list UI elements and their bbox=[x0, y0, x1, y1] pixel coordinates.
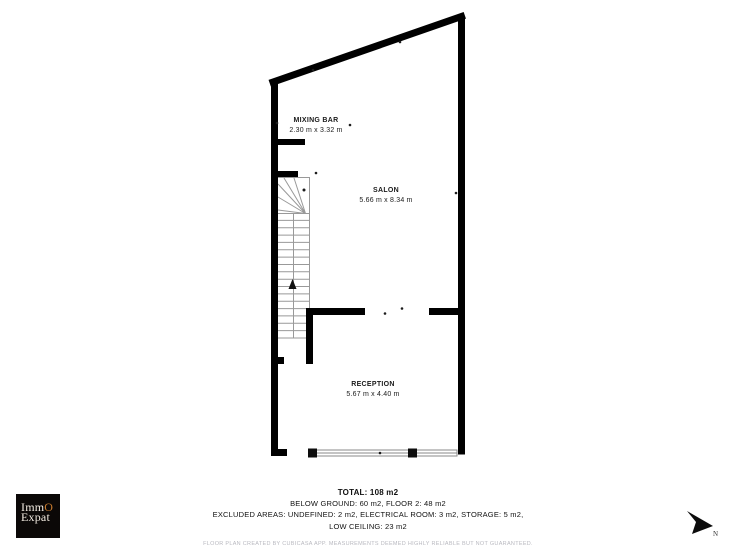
room-dims: 5.67 m x 4.40 m bbox=[346, 391, 399, 398]
room-label-salon: SALON 5.66 m x 8.34 m bbox=[359, 187, 412, 204]
room-name: RECEPTION bbox=[346, 381, 399, 388]
room-name: SALON bbox=[359, 187, 412, 194]
room-dims: 5.66 m x 8.34 m bbox=[359, 197, 412, 204]
low-ceiling-text: LOW CEILING: 23 m2 bbox=[0, 522, 736, 531]
logo: ImmO Expat bbox=[16, 494, 60, 538]
area-breakdown-text: BELOW GROUND: 60 m2, FLOOR 2: 48 m2 bbox=[0, 499, 736, 508]
floor-plan-page: MIXING BAR 2.30 m x 3.32 m SALON 5.66 m … bbox=[0, 0, 736, 552]
window-post-mid bbox=[408, 449, 417, 458]
floor-plan-drawing bbox=[0, 0, 736, 552]
stair-winder-fan bbox=[278, 178, 306, 214]
logo-text-expat: Expat bbox=[21, 512, 60, 523]
room-label-reception: RECEPTION 5.67 m x 4.40 m bbox=[346, 381, 399, 398]
north-label: N bbox=[713, 530, 718, 538]
footer-summary: TOTAL: 108 m2 BELOW GROUND: 60 m2, FLOOR… bbox=[0, 488, 736, 547]
room-name: MIXING BAR bbox=[289, 117, 342, 124]
room-label-mixing-bar: MIXING BAR 2.30 m x 3.32 m bbox=[289, 117, 342, 134]
disclaimer-text: FLOOR PLAN CREATED BY CUBICASA APP. MEAS… bbox=[0, 541, 736, 547]
total-area-text: TOTAL: 108 m2 bbox=[0, 488, 736, 497]
wall-top-slanted bbox=[273, 17, 462, 83]
window-post-left bbox=[308, 449, 317, 458]
excluded-areas-text: EXCLUDED AREAS: UNDEFINED: 2 m2, ELECTRI… bbox=[0, 510, 736, 519]
north-arrow-icon bbox=[687, 511, 713, 534]
window-assembly bbox=[308, 449, 457, 458]
staircase bbox=[278, 178, 310, 339]
stair-direction-arrow bbox=[289, 279, 297, 289]
room-dims: 2.30 m x 3.32 m bbox=[289, 127, 342, 134]
north-arrow: N bbox=[684, 505, 722, 541]
